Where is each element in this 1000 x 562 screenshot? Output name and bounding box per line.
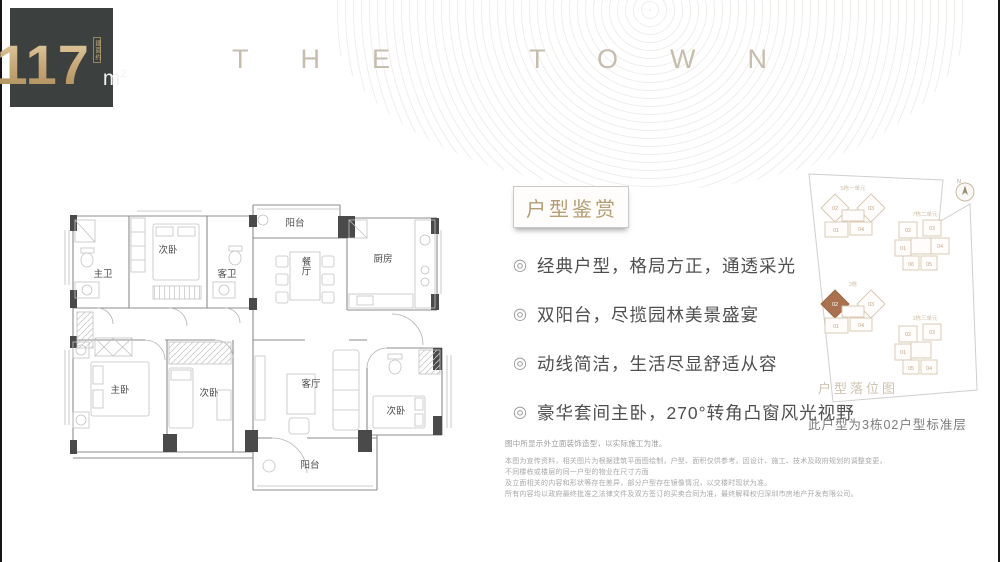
bullseye-bullet-icon: ◎ [513, 255, 527, 277]
svg-text:05: 05 [926, 262, 932, 268]
svg-text:05: 05 [908, 366, 914, 372]
svg-text:01: 01 [900, 350, 906, 356]
bullseye-bullet-icon: ◎ [513, 304, 527, 326]
svg-text:1栋三单元: 1栋三单元 [912, 314, 938, 322]
svg-text:03: 03 [868, 206, 874, 212]
area-value: 117 [0, 37, 90, 93]
floorplan: 阳台 次卧 主卫 客卫 餐厅 厨房 主卧 次卧 客厅 次卧 阳台 [57, 190, 457, 505]
svg-text:N: N [957, 179, 961, 185]
building-cluster-b-highlighted: 3栋 02 03 01 04 [821, 280, 885, 333]
svg-text:04: 04 [858, 227, 864, 233]
svg-text:01: 01 [833, 228, 839, 234]
feature-text: 动线简洁，生活尽显舒适从容 [537, 353, 778, 375]
area-prefix-vertical: 建面约 [93, 37, 101, 63]
svg-text:02: 02 [905, 228, 911, 234]
siteplan-title: 户型落位图 [818, 378, 898, 397]
feature-text: 经典户型，格局方正，通透采光 [537, 255, 796, 277]
svg-text:01: 01 [900, 246, 906, 252]
svg-text:3栋: 3栋 [849, 280, 858, 288]
siteplan-caption: 此户型为3栋02户型标准层 [808, 414, 967, 433]
room-label-guest-bath: 客卫 [217, 268, 237, 280]
svg-text:5栋一单元: 5栋一单元 [840, 184, 866, 192]
disclaimer-paragraph: 本图为宣传资料，相关图片为根据建筑平面图绘制，户型、面积仅供参考，因设计、施工、… [505, 457, 890, 500]
room-label-living-room: 客厅 [301, 378, 321, 390]
building-cluster-d: 1栋三单元 02 03 01 05 04 [895, 314, 941, 374]
building-cluster-c: 7栋二单元 02 03 01 04 06 05 [895, 210, 949, 270]
area-badge: 117 建面约 m2 [10, 8, 113, 107]
room-label-bedroom-top: 次卧 [158, 244, 178, 256]
floorplan-piers [70, 215, 442, 454]
room-label-master-bath: 主卫 [93, 268, 113, 280]
svg-text:01: 01 [833, 324, 839, 330]
bullseye-bullet-icon: ◎ [513, 353, 527, 375]
svg-text:02: 02 [905, 332, 911, 338]
room-label-dining: 餐厅 [300, 256, 312, 276]
feature-text: 双阳台，尽揽园林美景盛宴 [537, 304, 759, 326]
svg-text:04: 04 [926, 366, 932, 372]
svg-text:03: 03 [929, 330, 935, 336]
svg-text:06: 06 [908, 262, 914, 268]
bullseye-bullet-icon: ◎ [513, 402, 527, 424]
disclaimer-line1: 图中所显示外立面装饰造型，以实际施工为准。 [505, 438, 890, 449]
svg-text:7栋二单元: 7栋二单元 [912, 210, 938, 218]
room-label-bedroom-mid: 次卧 [199, 387, 219, 399]
ripple-decoration [330, 0, 970, 190]
svg-text:04: 04 [858, 323, 864, 329]
features-title: 户型鉴赏 [513, 186, 629, 228]
svg-text:04: 04 [937, 244, 943, 250]
room-label-balcony-top: 阳台 [285, 217, 304, 229]
svg-text:02: 02 [832, 206, 838, 212]
area-unit: m2 [103, 67, 127, 91]
room-label-bedroom-right: 次卧 [386, 405, 406, 417]
room-label-kitchen: 厨房 [373, 253, 392, 265]
svg-text:02: 02 [832, 302, 838, 308]
compass-icon: N [956, 179, 974, 201]
disclaimer: 图中所显示外立面装饰造型，以实际施工为准。 本图为宣传资料，相关图片为根据建筑平… [505, 438, 890, 500]
building-cluster-a: 5栋一单元 02 03 01 04 [821, 184, 885, 237]
brand-wordmark: THE TOWN [232, 44, 892, 75]
room-label-balcony-bottom: 阳台 [300, 459, 319, 471]
svg-text:03: 03 [868, 302, 874, 308]
room-label-master-bedroom: 主卧 [110, 384, 130, 396]
svg-text:03: 03 [929, 226, 935, 232]
floorplan-doors [97, 308, 423, 473]
